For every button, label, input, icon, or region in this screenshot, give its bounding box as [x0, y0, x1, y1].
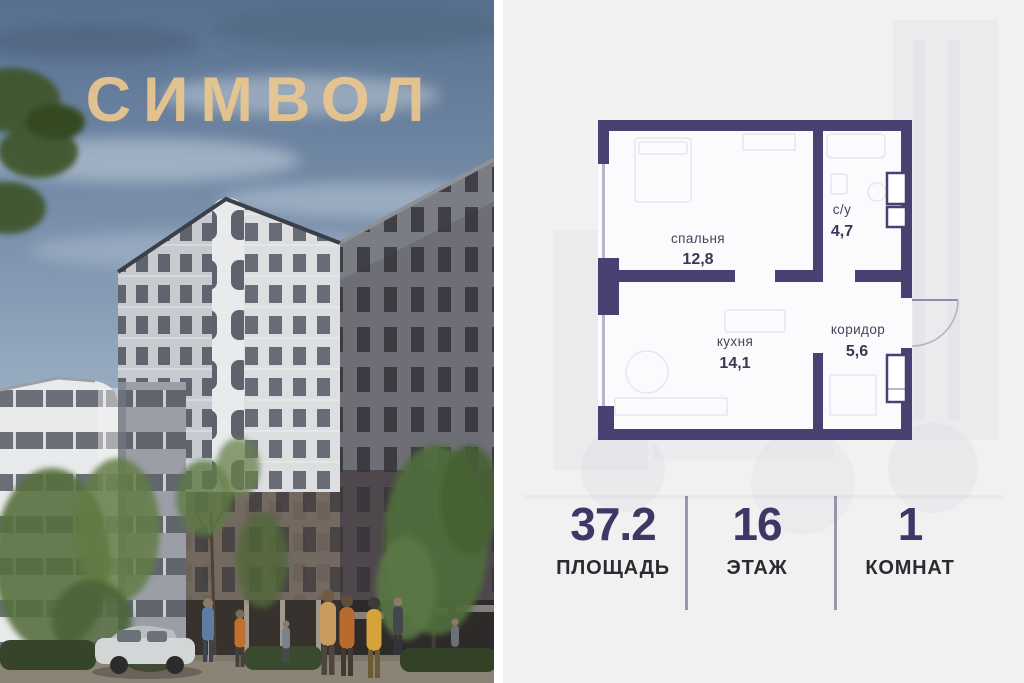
- divider-strip: [494, 0, 503, 683]
- room-area-corridor: 5,6: [846, 343, 868, 360]
- stat-area: 37.2 ПЛОЩАДЬ: [538, 500, 688, 580]
- floor-plan: спальня 12,8 с/у 4,7 кухня 14,1 коридор …: [575, 110, 975, 455]
- room-area-bathroom: 4,7: [831, 223, 853, 240]
- stat-floor: 16 ЭТАЖ: [682, 500, 832, 580]
- room-area-bedroom: 12,8: [682, 251, 713, 268]
- stat-area-label: ПЛОЩАДЬ: [538, 557, 688, 580]
- room-label-bathroom: с/у: [833, 202, 851, 217]
- stat-rooms-value: 1: [835, 500, 985, 548]
- project-logo: СИМВОЛ: [0, 64, 497, 136]
- stat-rooms: 1 КОМНАТ: [835, 500, 985, 580]
- room-label-bedroom: спальня: [671, 231, 725, 246]
- listing-card: СИМВОЛ: [0, 0, 1024, 683]
- stat-floor-label: ЭТАЖ: [682, 557, 832, 580]
- stat-rooms-label: КОМНАТ: [835, 557, 985, 580]
- stat-floor-value: 16: [682, 500, 832, 548]
- building-photo: СИМВОЛ: [0, 0, 497, 683]
- room-label-corridor: коридор: [831, 322, 885, 337]
- entrance-door: [912, 300, 958, 346]
- stat-area-value: 37.2: [538, 500, 688, 548]
- room-label-kitchen: кухня: [717, 334, 753, 349]
- room-area-kitchen: 14,1: [719, 355, 750, 372]
